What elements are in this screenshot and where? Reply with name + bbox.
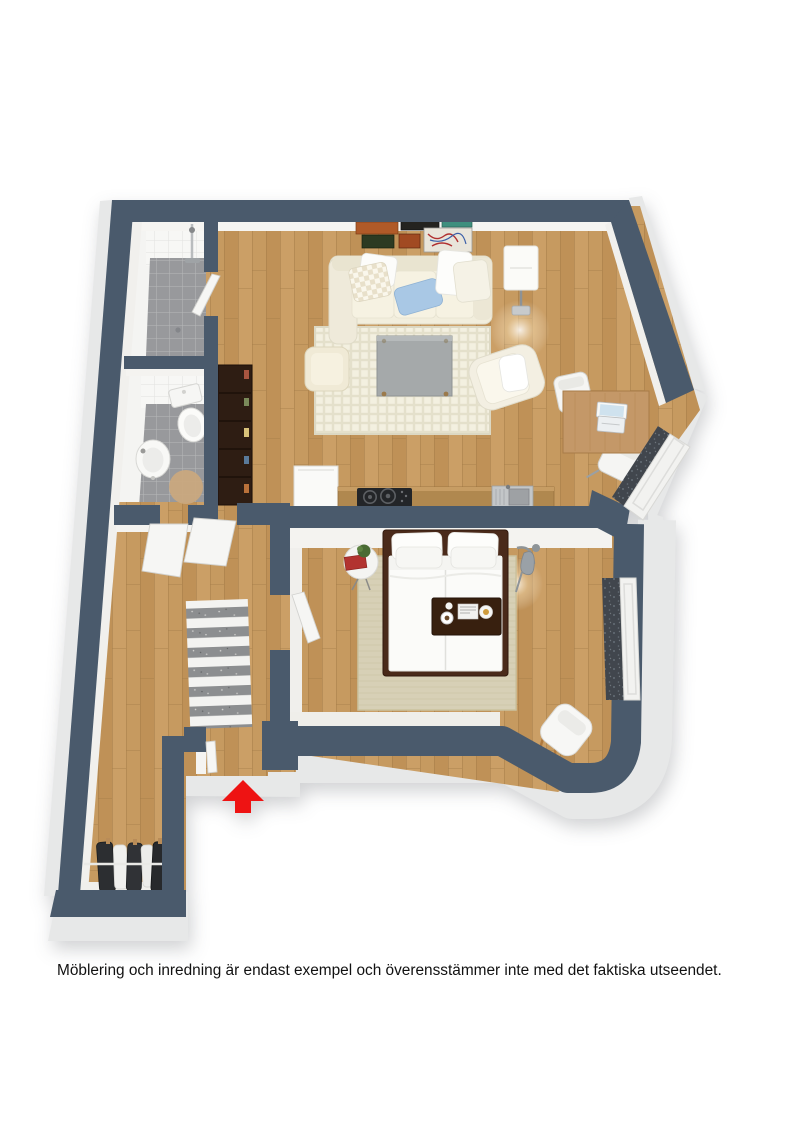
hall-top-stub <box>237 503 270 525</box>
bed-tray <box>432 598 501 635</box>
corridor-wall <box>162 736 184 896</box>
wall-art <box>356 219 472 252</box>
pouf <box>305 347 349 391</box>
round-mat <box>169 470 203 504</box>
bookshelf <box>218 365 252 505</box>
closet-bottom-wall <box>50 890 186 917</box>
double-bed <box>383 530 508 676</box>
coffee-table <box>377 336 452 396</box>
wc-door-leaf <box>142 524 188 577</box>
wc-bottom-wall <box>114 505 160 525</box>
top-wall <box>112 200 629 222</box>
entry-door-leaf <box>206 741 217 773</box>
kitchen-sink <box>492 485 533 508</box>
hall-bedroom-wall <box>270 650 290 730</box>
caption-text: Möblering och inredning är endast exempe… <box>57 961 757 981</box>
laptop <box>595 402 627 434</box>
shower-wc-divider <box>124 356 212 369</box>
bathroom-right-wall <box>204 316 218 524</box>
kitchen-wall <box>286 506 618 528</box>
hallway-striped-rug <box>186 599 252 729</box>
fridge <box>294 466 338 512</box>
bathroom-right-wall <box>204 208 218 272</box>
page: Möblering och inredning är endast exempe… <box>0 0 800 1131</box>
cooktop <box>357 488 412 507</box>
entry-stub <box>184 727 206 752</box>
bedroom-radiator <box>620 578 640 700</box>
